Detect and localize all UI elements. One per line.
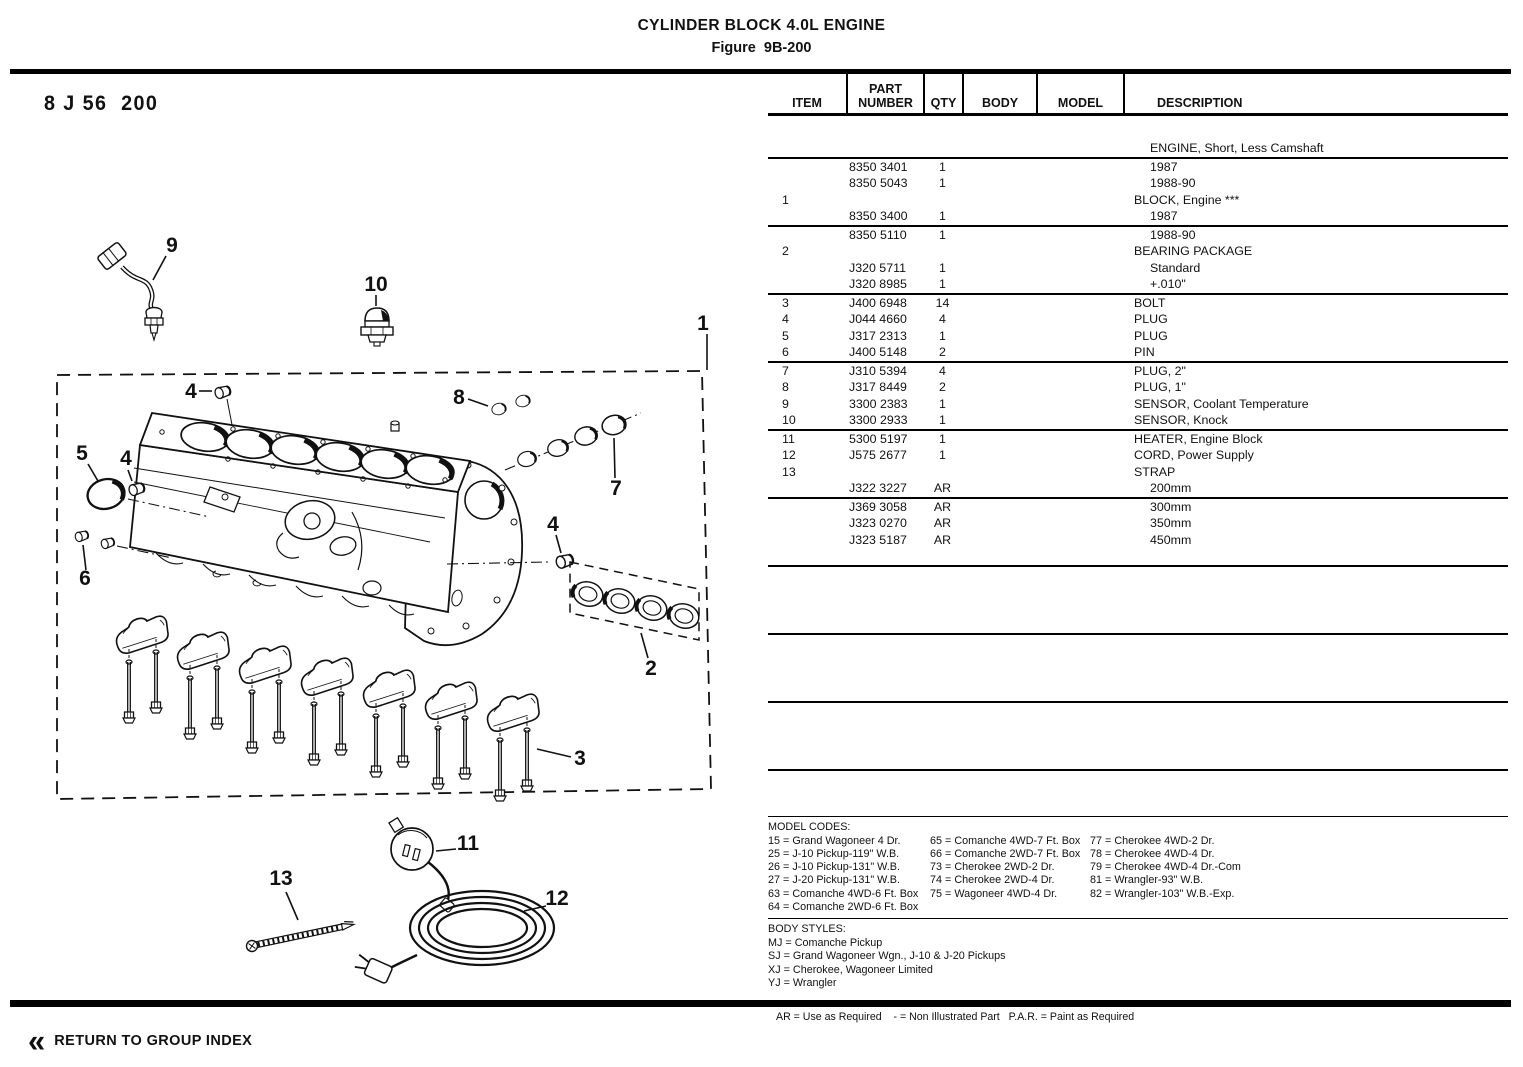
cell-part-number: J320 8985 [846, 276, 923, 293]
cell-qty: 1 [923, 276, 962, 293]
cell-description: STRAP [1123, 464, 1508, 481]
model-code: 25 = J-10 Pickup-119" W.B. [768, 848, 930, 861]
cell-body [962, 227, 1036, 244]
cell-qty: 4 [923, 311, 962, 328]
cell-body [962, 431, 1036, 448]
cell-description: Standard [1123, 260, 1508, 277]
cell-description: PLUG [1123, 311, 1508, 328]
table-group: 7 J310 5394 4 PLUG, 2" 8 J317 8449 2 PLU… [768, 363, 1508, 431]
cell-body [962, 208, 1036, 225]
body-style: SJ = Grand Wagoneer Wgn., J-10 & J-20 Pi… [768, 950, 1508, 963]
cell-part-number: J310 5394 [846, 363, 923, 380]
cell-part-number [846, 464, 923, 481]
coolant-temp-sensor [97, 242, 163, 340]
table-row: J323 0270 AR 350mm [768, 515, 1508, 532]
cell-item: 2 [768, 243, 846, 260]
cell-description: PIN [1123, 344, 1508, 361]
model-code: 64 = Comanche 2WD-6 Ft. Box [768, 901, 930, 914]
exploded-view-diagram: 1 9 [20, 230, 770, 1000]
cell-part-number [846, 192, 923, 209]
cell-description: BLOCK, Engine *** [1123, 192, 1508, 209]
cell-qty: 1 [923, 447, 962, 464]
model-code: 81 = Wrangler-93" W.B. [1090, 874, 1508, 887]
cell-part-number: 5300 5197 [846, 431, 923, 448]
cell-body [962, 363, 1036, 380]
knock-sensor [361, 308, 393, 346]
cell-description: 1987 [1123, 159, 1508, 176]
cell-part-number: 8350 5110 [846, 227, 923, 244]
cell-description: +.010" [1123, 276, 1508, 293]
cell-qty: 1 [923, 412, 962, 429]
cell-model [1036, 208, 1123, 225]
cell-item: 9 [768, 396, 846, 413]
callout-13-label: 13 [269, 867, 292, 890]
model-code: 78 = Cherokee 4WD-4 Dr. [1090, 848, 1508, 861]
stamp-code: 8 J 56 200 [44, 92, 158, 116]
cell-body [962, 480, 1036, 497]
cell-item [768, 515, 846, 532]
cell-part-number: 3300 2933 [846, 412, 923, 429]
cell-description: SENSOR, Coolant Temperature [1123, 396, 1508, 413]
cell-item [768, 175, 846, 192]
cell-part-number: 3300 2383 [846, 396, 923, 413]
table-header: ITEM PARTNUMBER QTY BODY MODEL DESCRIPTI… [768, 74, 1508, 116]
table-group: 8350 5110 1 1988-90 2 BEARING PACKAGE J3… [768, 227, 1508, 295]
cell-body [962, 499, 1036, 516]
cell-model [1036, 276, 1123, 293]
table-group: J369 3058 AR 300mm J323 0270 AR 350mm J3… [768, 499, 1508, 567]
model-code: 82 = Wrangler-103" W.B.-Exp. [1090, 888, 1508, 901]
cell-model [1036, 396, 1123, 413]
cell-qty: AR [923, 480, 962, 497]
return-to-group-index-button[interactable]: « RETURN TO GROUP INDEX [28, 1028, 252, 1054]
table-row: 8350 3400 1 1987 [768, 208, 1508, 225]
cell-qty [923, 192, 962, 209]
cell-body [962, 295, 1036, 312]
cell-part-number: 8350 3401 [846, 159, 923, 176]
table-row: 8350 3401 1 1987 [768, 159, 1508, 176]
callout-9-label: 9 [166, 234, 178, 257]
cell-body [962, 175, 1036, 192]
block-heater [389, 818, 455, 913]
body-style: XJ = Cherokee, Wagoneer Limited [768, 964, 1508, 977]
cell-model [1036, 140, 1123, 157]
cell-qty: 1 [923, 159, 962, 176]
catalog-page: CYLINDER BLOCK 4.0L ENGINE Figure 9B-200… [0, 0, 1523, 1067]
cell-item [768, 480, 846, 497]
cell-model [1036, 412, 1123, 429]
col-header-item: ITEM [768, 74, 846, 113]
cell-body [962, 464, 1036, 481]
table-group-empty [768, 635, 1508, 703]
body-styles-section: BODY STYLES: MJ = Comanche PickupSJ = Gr… [768, 918, 1508, 990]
table-row: 2 BEARING PACKAGE [768, 243, 1508, 260]
cell-body [962, 515, 1036, 532]
cell-item: 7 [768, 363, 846, 380]
model-code: 79 = Cherokee 4WD-4 Dr.-Com [1090, 861, 1508, 874]
cell-qty: 1 [923, 260, 962, 277]
cell-body [962, 276, 1036, 293]
cell-description: SENSOR, Knock [1123, 412, 1508, 429]
table-row: 5 J317 2313 1 PLUG [768, 328, 1508, 345]
cell-body [962, 328, 1036, 345]
cell-model [1036, 311, 1123, 328]
cell-part-number [846, 140, 923, 157]
cell-body [962, 532, 1036, 549]
col-header-part-number: PARTNUMBER [846, 74, 923, 113]
cell-description: HEATER, Engine Block [1123, 431, 1508, 448]
cell-body [962, 344, 1036, 361]
table-row: ENGINE, Short, Less Camshaft [768, 140, 1508, 157]
cell-part-number: 8350 5043 [846, 175, 923, 192]
parts-table: ITEM PARTNUMBER QTY BODY MODEL DESCRIPTI… [768, 74, 1508, 990]
cell-description: 450mm [1123, 532, 1508, 549]
cell-item [768, 276, 846, 293]
callout-7-label: 7 [610, 477, 622, 500]
cell-body [962, 396, 1036, 413]
cell-description: CORD, Power Supply [1123, 447, 1508, 464]
table-row: 4 J044 4660 4 PLUG [768, 311, 1508, 328]
cell-item [768, 227, 846, 244]
table-row: 8350 5110 1 1988-90 [768, 227, 1508, 244]
cell-body [962, 412, 1036, 429]
cell-model [1036, 363, 1123, 380]
cell-model [1036, 515, 1123, 532]
cell-item [768, 140, 846, 157]
cell-item [768, 159, 846, 176]
cell-body [962, 140, 1036, 157]
callout-8-label: 8 [453, 386, 465, 409]
cell-model [1036, 227, 1123, 244]
cell-model [1036, 447, 1123, 464]
model-code: 77 = Cherokee 4WD-2 Dr. [1090, 835, 1508, 848]
cell-qty [923, 140, 962, 157]
table-group: ENGINE, Short, Less Camshaft [768, 116, 1508, 159]
cell-model [1036, 379, 1123, 396]
page-title: CYLINDER BLOCK 4.0L ENGINE [0, 17, 1523, 35]
cell-item: 13 [768, 464, 846, 481]
table-group-empty [768, 703, 1508, 771]
cell-model [1036, 243, 1123, 260]
callout-1-label: 1 [697, 312, 709, 335]
cell-part-number: J322 3227 [846, 480, 923, 497]
model-code: 15 = Grand Wagoneer 4 Dr. [768, 835, 930, 848]
cell-model [1036, 328, 1123, 345]
cell-item [768, 260, 846, 277]
cell-part-number: J317 8449 [846, 379, 923, 396]
cell-part-number: J317 2313 [846, 328, 923, 345]
cell-body [962, 192, 1036, 209]
cell-qty: 2 [923, 379, 962, 396]
cell-description: BEARING PACKAGE [1123, 243, 1508, 260]
cell-part-number: J400 5148 [846, 344, 923, 361]
body-styles-title: BODY STYLES: [768, 923, 1508, 936]
model-code: 63 = Comanche 4WD-6 Ft. Box [768, 888, 930, 901]
cell-qty: 2 [923, 344, 962, 361]
cell-item: 12 [768, 447, 846, 464]
callout-4a-label: 4 [185, 380, 197, 403]
cell-qty: 1 [923, 227, 962, 244]
model-code: 26 = J-10 Pickup-131" W.B. [768, 861, 930, 874]
callout-10-label: 10 [364, 273, 387, 296]
col-header-model: MODEL [1036, 74, 1123, 113]
model-code: 74 = Cherokee 2WD-4 Dr. [930, 874, 1090, 887]
cell-model [1036, 344, 1123, 361]
double-chevron-left-icon: « [28, 1027, 45, 1054]
cell-description: 1988-90 [1123, 175, 1508, 192]
cell-description: BOLT [1123, 295, 1508, 312]
cell-qty: 1 [923, 208, 962, 225]
body-style: MJ = Comanche Pickup [768, 937, 1508, 950]
table-row: J320 5711 1 Standard [768, 260, 1508, 277]
strap [245, 920, 355, 952]
cell-model [1036, 260, 1123, 277]
table-row: 13 STRAP [768, 464, 1508, 481]
table-group-empty [768, 567, 1508, 635]
table-row: J323 5187 AR 450mm [768, 532, 1508, 549]
cell-model [1036, 192, 1123, 209]
cell-qty: 4 [923, 363, 962, 380]
page-header: CYLINDER BLOCK 4.0L ENGINE Figure 9B-200 [0, 17, 1523, 56]
cell-part-number: 8350 3400 [846, 208, 923, 225]
col-header-description: DESCRIPTION [1123, 74, 1508, 113]
callout-2-label: 2 [645, 657, 657, 680]
cell-body [962, 311, 1036, 328]
model-codes-section: MODEL CODES: 15 = Grand Wagoneer 4 Dr.25… [768, 816, 1508, 914]
col-header-body: BODY [962, 74, 1036, 113]
table-row: 1 BLOCK, Engine *** [768, 192, 1508, 209]
cell-body [962, 447, 1036, 464]
table-row: 3 J400 6948 14 BOLT [768, 295, 1508, 312]
callout-12-label: 12 [545, 887, 568, 910]
cell-description: 300mm [1123, 499, 1508, 516]
cell-body [962, 159, 1036, 176]
cell-item: 1 [768, 192, 846, 209]
cell-description: PLUG, 1" [1123, 379, 1508, 396]
model-code: 65 = Comanche 4WD-7 Ft. Box [930, 835, 1090, 848]
cell-part-number: J369 3058 [846, 499, 923, 516]
table-row: 8350 5043 1 1988-90 [768, 175, 1508, 192]
model-code: 27 = J-20 Pickup-131" W.B. [768, 874, 930, 887]
cell-description: 200mm [1123, 480, 1508, 497]
cell-qty: 1 [923, 175, 962, 192]
cell-part-number: J400 6948 [846, 295, 923, 312]
body-style: YJ = Wrangler [768, 977, 1508, 990]
cell-model [1036, 431, 1123, 448]
table-row: 10 3300 2933 1 SENSOR, Knock [768, 412, 1508, 429]
cell-qty [923, 464, 962, 481]
table-row: 8 J317 8449 2 PLUG, 1" [768, 379, 1508, 396]
model-code: 73 = Cherokee 2WD-2 Dr. [930, 861, 1090, 874]
cell-part-number [846, 243, 923, 260]
cell-model [1036, 532, 1123, 549]
cell-body [962, 260, 1036, 277]
callout-4c-label: 4 [547, 513, 559, 536]
cell-item: 4 [768, 311, 846, 328]
model-code: 66 = Comanche 2WD-7 Ft. Box [930, 848, 1090, 861]
table-row: J322 3227 AR 200mm [768, 480, 1508, 497]
cell-item: 10 [768, 412, 846, 429]
table-group: 3 J400 6948 14 BOLT 4 J044 4660 4 PLUG 5… [768, 295, 1508, 363]
cell-body [962, 243, 1036, 260]
model-codes-title: MODEL CODES: [768, 821, 1508, 834]
cell-model [1036, 480, 1123, 497]
cell-item: 8 [768, 379, 846, 396]
table-row: 6 J400 5148 2 PIN [768, 344, 1508, 361]
cell-model [1036, 464, 1123, 481]
cell-qty: AR [923, 515, 962, 532]
cell-qty: 1 [923, 396, 962, 413]
callout-6-label: 6 [79, 567, 91, 590]
bearing-caps [112, 613, 542, 801]
cell-item: 6 [768, 344, 846, 361]
cell-qty: AR [923, 499, 962, 516]
cell-qty [923, 243, 962, 260]
table-row: J320 8985 1 +.010" [768, 276, 1508, 293]
callout-11-label: 11 [457, 832, 480, 855]
model-code: 75 = Wagoneer 4WD-4 Dr. [930, 888, 1090, 901]
callout-3-label: 3 [574, 747, 586, 770]
cell-item [768, 499, 846, 516]
cell-part-number: J575 2677 [846, 447, 923, 464]
cell-qty: 1 [923, 328, 962, 345]
cell-model [1036, 175, 1123, 192]
cell-item: 5 [768, 328, 846, 345]
legend-note: AR = Use as Required - = Non Illustrated… [776, 1011, 1134, 1023]
cell-model [1036, 499, 1123, 516]
table-row: 9 3300 2383 1 SENSOR, Coolant Temperatur… [768, 396, 1508, 413]
table-group: 8350 3401 1 1987 8350 5043 1 1988-90 1 [768, 159, 1508, 227]
cell-part-number: J323 5187 [846, 532, 923, 549]
table-row: 11 5300 5197 1 HEATER, Engine Block [768, 431, 1508, 448]
cell-body [962, 379, 1036, 396]
cell-item: 11 [768, 431, 846, 448]
cell-description: 1987 [1123, 208, 1508, 225]
bottom-rule [10, 1000, 1511, 1007]
cell-part-number: J320 5711 [846, 260, 923, 277]
engine-block [130, 413, 522, 645]
return-label: RETURN TO GROUP INDEX [54, 1033, 252, 1049]
cell-qty: 14 [923, 295, 962, 312]
figure-number: Figure 9B-200 [0, 40, 1523, 56]
table-row: 12 J575 2677 1 CORD, Power Supply [768, 447, 1508, 464]
cell-part-number: J044 4660 [846, 311, 923, 328]
cell-description: 1988-90 [1123, 227, 1508, 244]
col-header-qty: QTY [923, 74, 962, 113]
cell-item: 3 [768, 295, 846, 312]
cell-item [768, 532, 846, 549]
cell-qty: AR [923, 532, 962, 549]
callout-4b-label: 4 [120, 447, 132, 470]
cell-description: 350mm [1123, 515, 1508, 532]
cell-item [768, 208, 846, 225]
table-row: J369 3058 AR 300mm [768, 499, 1508, 516]
cell-part-number: J323 0270 [846, 515, 923, 532]
table-group: 11 5300 5197 1 HEATER, Engine Block 12 J… [768, 431, 1508, 499]
cell-description: ENGINE, Short, Less Camshaft [1123, 140, 1508, 157]
cell-model [1036, 159, 1123, 176]
cell-model [1036, 295, 1123, 312]
table-row: 7 J310 5394 4 PLUG, 2" [768, 363, 1508, 380]
cell-description: PLUG [1123, 328, 1508, 345]
cell-qty: 1 [923, 431, 962, 448]
cell-description: PLUG, 2" [1123, 363, 1508, 380]
callout-5-label: 5 [76, 442, 88, 465]
